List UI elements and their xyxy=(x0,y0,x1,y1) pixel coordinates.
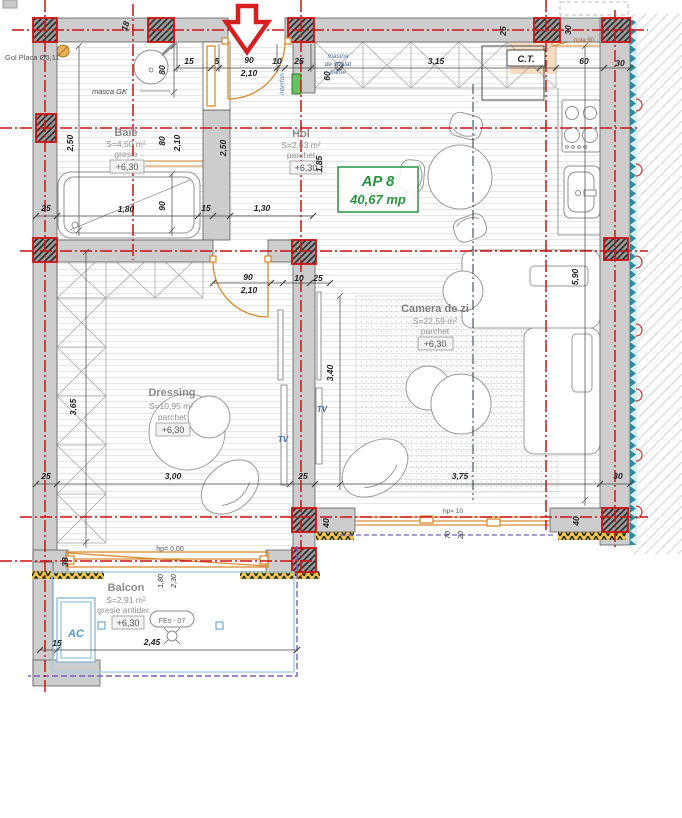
dim-kitchen-30: 30 xyxy=(615,58,625,68)
dim-col-40b: 40 xyxy=(571,516,581,527)
room-dressing-finish: parchet xyxy=(158,412,187,422)
window-code-label: FEs - 07 xyxy=(159,618,186,625)
dim-sill-20: 20 xyxy=(458,531,465,540)
column xyxy=(292,548,316,572)
living-window xyxy=(355,517,550,525)
wall-balcony-stub xyxy=(33,660,100,686)
bathroom-door xyxy=(207,46,215,106)
room-living-name: Camera de zi xyxy=(401,303,469,315)
column xyxy=(604,238,628,260)
kitchen-faucet xyxy=(584,190,596,196)
dim-tub-length: 1,80 xyxy=(118,204,135,214)
masca-label: masca GK xyxy=(92,87,128,96)
dim-right-30: 30 xyxy=(613,471,623,481)
room-baie-area: S=4,50 m² xyxy=(106,139,146,149)
dim-hol-width: 1,30 xyxy=(254,203,271,213)
neighbor-wall-stub xyxy=(3,0,17,8)
dim-dr-door-25: 25 xyxy=(312,273,323,283)
dim-bottom-25b: 25 xyxy=(297,471,308,481)
dim-baie-height: 2,50 xyxy=(65,134,75,152)
room-baie-name: Baie xyxy=(114,127,137,139)
room-dressing-name: Dressing xyxy=(148,387,195,399)
dim-dr-door-width: 90 xyxy=(243,272,253,282)
ceiling-lamp-icon xyxy=(164,628,180,644)
room-hol-area: S=2,63 m² xyxy=(281,140,321,150)
dim-tub-width: 90 xyxy=(157,201,167,211)
room-hol-name: Hol xyxy=(292,128,310,140)
dim-dr-door-10: 10 xyxy=(294,273,304,283)
dim-balcony-15: 15 xyxy=(52,638,62,648)
sofa-pillow xyxy=(572,334,592,392)
dim-top-10: 10 xyxy=(272,56,282,66)
room-balcony-name: Balcon xyxy=(108,582,145,594)
dim-balcony-245: 2,45 xyxy=(143,637,161,647)
tv-label-left: TV xyxy=(278,435,289,444)
dim-dressing-300: 3,00 xyxy=(165,471,182,481)
floor-plan-page: Baie S=4,50 m² gresie +6,30 Hol S=2,63 m… xyxy=(0,0,682,818)
apartment-area: 40,67 mp xyxy=(349,192,406,207)
ac-label: AC xyxy=(67,628,85,640)
room-dressing-level: +6,30 xyxy=(162,425,185,435)
dim-top-25: 25 xyxy=(293,56,304,66)
tv-unit-living xyxy=(316,388,322,464)
dim-hood-30: 30 xyxy=(563,25,573,35)
dim-sink-80: 80 xyxy=(157,65,167,75)
room-living-level: +6,30 xyxy=(424,339,447,349)
room-dressing-area: S=10,95 m² xyxy=(149,401,193,411)
tv-label-right: TV xyxy=(317,405,328,414)
facade-insulation xyxy=(630,20,637,545)
apartment-id: AP 8 xyxy=(361,173,395,190)
column xyxy=(292,240,316,264)
dining-table xyxy=(428,145,492,209)
dim-left-25: 25 xyxy=(40,203,51,213)
slab-hole-label: Gol Placa Ø0,11 xyxy=(5,53,59,62)
dim-balcony-window-180: 1,80 xyxy=(158,574,165,588)
drain-point xyxy=(216,622,223,629)
room-balcony-area: S=2,91 m² xyxy=(106,595,146,605)
intercom-label: interfon xyxy=(279,73,286,95)
dim-washer-60: 60 xyxy=(322,71,332,81)
wall-baie-hol xyxy=(203,110,230,240)
dim-hol-opening: 1,85 xyxy=(314,155,324,172)
dressing-pouf xyxy=(188,396,230,438)
column xyxy=(292,508,316,532)
wall-dressing-living xyxy=(293,240,315,532)
dim-bottom-25a: 25 xyxy=(40,471,51,481)
neighbor-outline-dashed xyxy=(560,2,628,15)
dim-niche-80: 80 xyxy=(157,136,167,146)
dim-col-40a: 40 xyxy=(321,518,331,529)
hp-window-label: hp= 10 xyxy=(443,508,463,515)
dim-dressing-365: 3,65 xyxy=(68,398,78,415)
room-balcony-level: +6,30 xyxy=(117,618,140,628)
dim-entry-door-width: 90 xyxy=(244,55,254,65)
dim-sill-70: 70 xyxy=(445,531,452,539)
floor-plan-drawing: Baie S=4,50 m² gresie +6,30 Hol S=2,63 m… xyxy=(0,0,682,818)
dim-kitchen-wall: 3,15 xyxy=(428,56,445,66)
dim-living-590: 5,90 xyxy=(570,268,580,285)
room-living-finish: parchet xyxy=(421,326,450,336)
ct-label: C.T. xyxy=(517,54,534,65)
washing-machine-label-2: de spalat xyxy=(325,61,353,68)
room-baie-finish: gresie xyxy=(114,149,137,159)
dim-balcony-window-230: 2,30 xyxy=(171,574,178,589)
room-balcony-finish: gresie antider. xyxy=(97,605,150,615)
wall-balcony-right-seg xyxy=(266,550,293,574)
washing-machine-label-3: haine xyxy=(330,69,346,76)
exterior-hatch-right xyxy=(630,14,682,554)
dim-kitchen-60: 60 xyxy=(579,56,589,66)
intercom-unit xyxy=(292,74,301,94)
dim-hol-height: 2,50 xyxy=(218,139,228,157)
dim-wall-15: 15 xyxy=(201,203,211,213)
dim-dr-door-height: 2,10 xyxy=(240,285,258,295)
room-living-area: S=22,59 m² xyxy=(413,316,457,326)
dim-top-15: 15 xyxy=(184,56,194,66)
room-hol-finish: parchet xyxy=(287,150,316,160)
dim-living-340: 3,40 xyxy=(325,364,335,381)
dim-top-5: 5 xyxy=(215,56,220,66)
drain-point xyxy=(98,622,105,629)
room-baie-level: +6,30 xyxy=(116,162,139,172)
hp-balcony-label: hp= 0,00 xyxy=(156,546,184,553)
dim-wall-25: 25 xyxy=(498,26,508,37)
dim-niche-210: 2,10 xyxy=(172,134,182,152)
dim-living-375: 3,75 xyxy=(452,471,469,481)
hood-label: hota 90 xyxy=(574,38,595,44)
dim-entry-door-height: 2,10 xyxy=(240,68,258,78)
dim-balcony-38: 38 xyxy=(60,557,70,567)
washing-machine-label-1: masina xyxy=(328,53,349,60)
